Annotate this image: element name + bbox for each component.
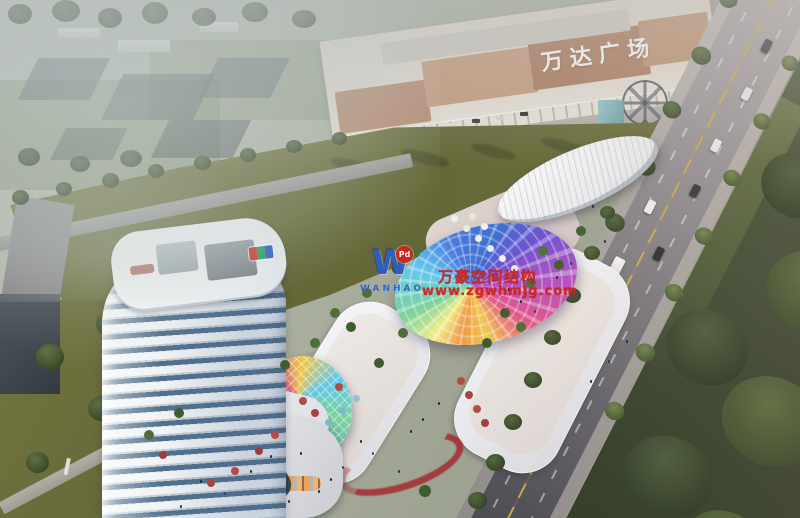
watermark: W Pd WANHAO 万豪空间结构 www.zgwhmjg.com [358, 244, 658, 318]
watermark-logo-name: WANHAO [360, 284, 424, 294]
watermark-logo-badge: Pd [396, 246, 413, 263]
watermark-url-text: www.zgwhmjg.com [422, 284, 578, 299]
rendering-image: 万达广场 [0, 0, 800, 518]
